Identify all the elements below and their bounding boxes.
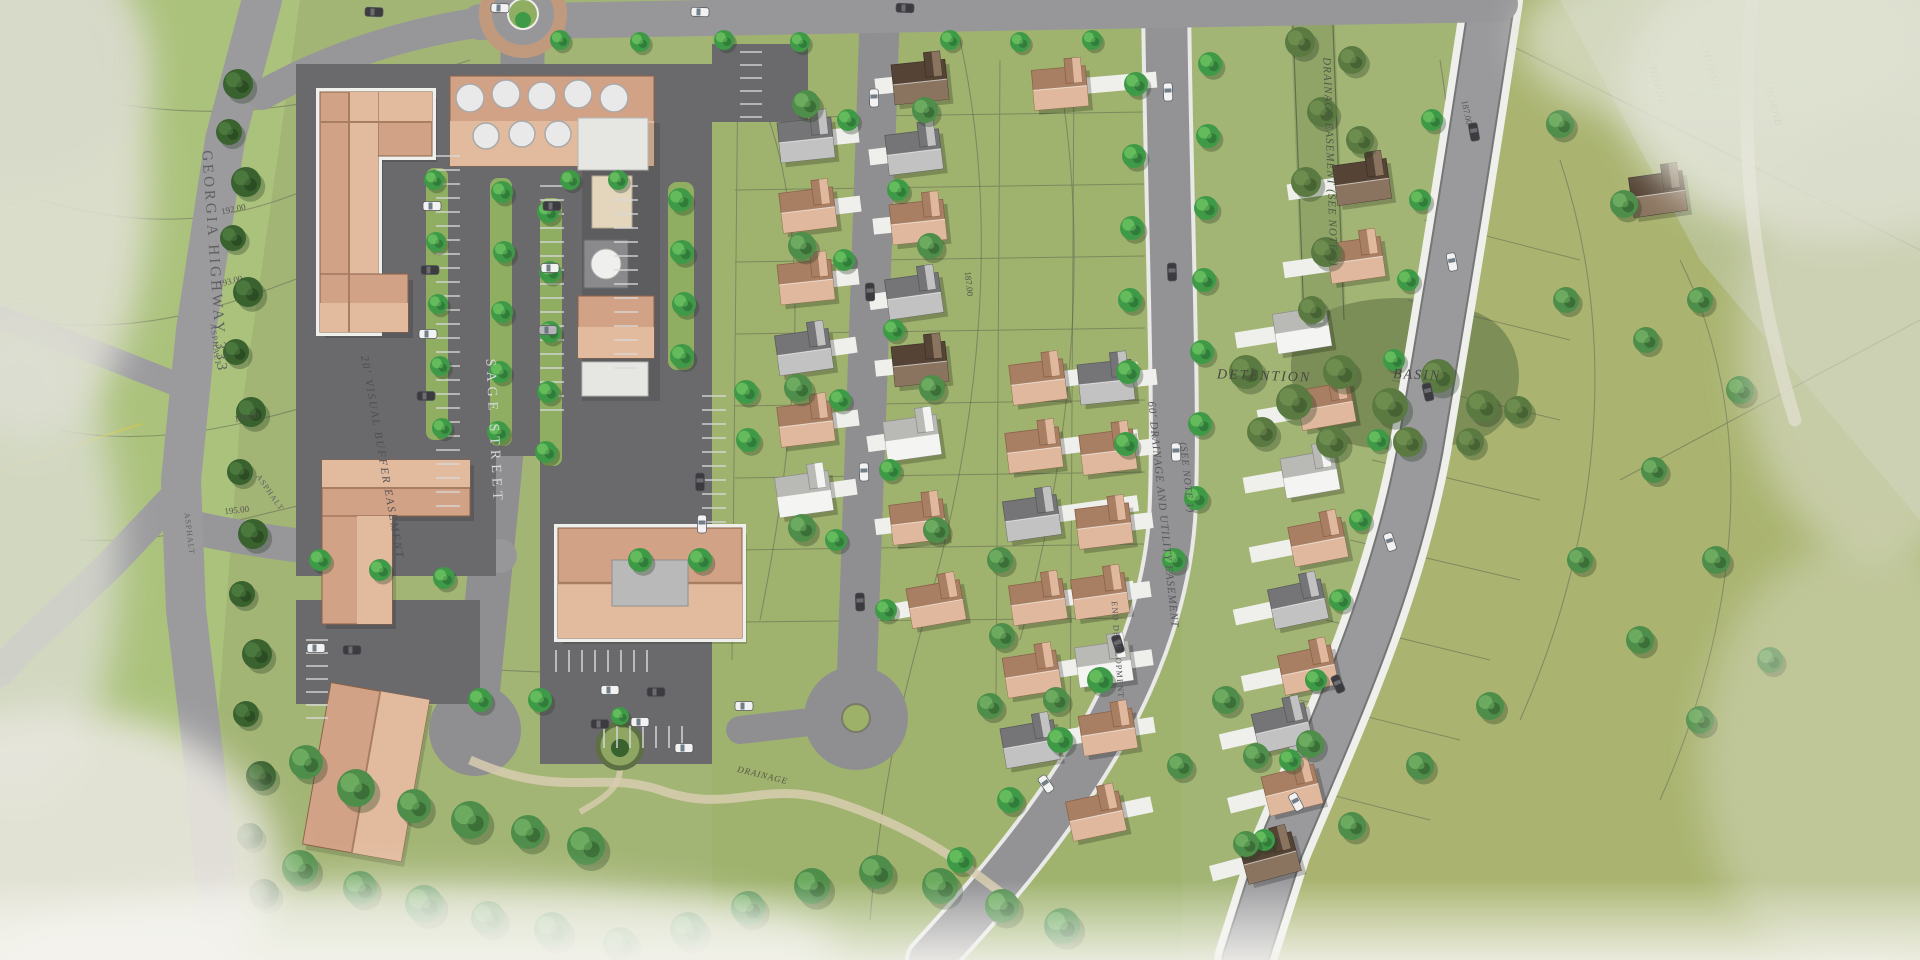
car [491, 3, 509, 13]
car [1163, 83, 1173, 101]
car [691, 7, 709, 17]
car [859, 463, 869, 481]
car [735, 702, 753, 711]
car [601, 686, 619, 695]
car [591, 720, 609, 729]
site-plan-canvas: GEORGIA HIGHWAY 333ASPHALTASPHALTASPHALT… [0, 0, 1920, 960]
car [896, 3, 914, 13]
building-anchor [554, 524, 747, 644]
car [539, 326, 557, 335]
car [343, 646, 361, 655]
car [543, 202, 561, 211]
car [417, 392, 435, 401]
grass-layer [0, 0, 1920, 960]
car [675, 744, 693, 753]
car [365, 7, 383, 17]
car [421, 266, 439, 275]
car [423, 202, 441, 211]
car [1167, 263, 1177, 281]
car [869, 89, 879, 107]
top-street [480, 4, 1500, 22]
building-mixed [578, 118, 660, 401]
car [631, 718, 649, 727]
car [865, 283, 875, 301]
car [541, 264, 559, 273]
roundabout-tree [515, 12, 531, 28]
site-plan-svg: GEORGIA HIGHWAY 333ASPHALTASPHALTASPHALT… [0, 0, 1920, 960]
car [419, 330, 437, 339]
car [855, 593, 865, 611]
car [696, 473, 705, 491]
car [698, 515, 707, 533]
map-label: BASIN [1393, 367, 1442, 384]
car [307, 644, 325, 653]
car [647, 688, 665, 697]
